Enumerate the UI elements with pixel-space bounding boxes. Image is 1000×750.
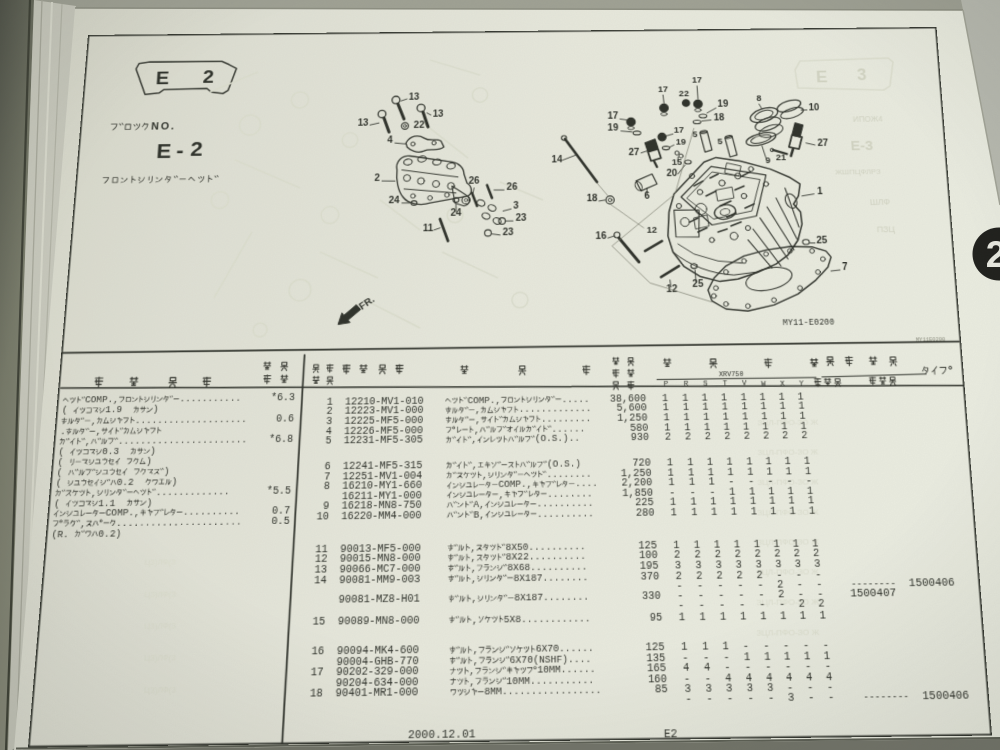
svg-text:....................: .................... [135, 414, 248, 426]
svg-text:15: 15 [672, 157, 683, 167]
svg-text:26: 26 [507, 182, 518, 192]
svg-text:ЗЦЛ-ПФО-ЗО Ж: ЗЦЛ-ПФО-ЗО Ж [757, 537, 820, 548]
svg-text:,: , [471, 434, 477, 445]
svg-text:-: - [706, 692, 713, 706]
svg-text:0.2: 0.2 [116, 477, 134, 489]
svg-text:8MM.................: 8MM................. [484, 685, 601, 699]
svg-text:2: 2 [665, 431, 671, 443]
svg-text:ИПОЖ4: ИПОЖ4 [853, 115, 884, 124]
svg-text:13: 13 [433, 109, 444, 119]
svg-text:8: 8 [324, 480, 331, 493]
svg-text:,: , [471, 593, 477, 605]
svg-text:2: 2 [986, 234, 1000, 275]
svg-text:2: 2 [744, 430, 751, 442]
svg-text:1: 1 [679, 610, 686, 623]
svg-text:3: 3 [788, 691, 795, 705]
svg-text:,: , [91, 487, 98, 498]
svg-text:10: 10 [808, 102, 819, 112]
svg-text:1: 1 [720, 610, 727, 623]
svg-text:5X8............: 5X8............ [504, 613, 591, 626]
svg-text:330: 330 [642, 590, 661, 603]
svg-text:22: 22 [414, 120, 425, 130]
svg-text:,: , [95, 426, 101, 437]
svg-text:8: 8 [756, 93, 762, 103]
svg-text:-: - [808, 691, 815, 705]
svg-text:1: 1 [817, 186, 823, 196]
svg-text:,: , [85, 436, 92, 447]
svg-text:ЦЗ)ЛФ(З: ЦЗ)ЛФ(З [144, 655, 176, 664]
svg-text:-: - [685, 693, 692, 707]
svg-text:W: W [761, 380, 767, 389]
svg-text:1: 1 [760, 609, 767, 622]
svg-text:25: 25 [816, 235, 827, 246]
svg-text:E: E [156, 140, 172, 163]
svg-text:2: 2 [724, 430, 731, 442]
svg-text:): ) [146, 497, 152, 509]
svg-text:1: 1 [751, 505, 758, 518]
svg-text:-: - [727, 692, 734, 706]
svg-text:2: 2 [705, 431, 711, 443]
svg-text:(: ( [54, 498, 61, 510]
svg-text:COMP.,: COMP., [467, 395, 501, 406]
svg-text:90081-MM9-003: 90081-MM9-003 [339, 572, 420, 586]
svg-text:1: 1 [789, 504, 796, 517]
svg-text:(R.: (R. [51, 529, 69, 541]
svg-text:T: T [723, 380, 728, 389]
svg-text:24: 24 [451, 208, 463, 218]
svg-text:26: 26 [469, 176, 480, 186]
svg-text:4: 4 [387, 135, 394, 145]
svg-text:1500406: 1500406 [922, 689, 970, 703]
svg-text:ЦЗ)ЛФ(З: ЦЗ)ЛФ(З [144, 559, 176, 568]
svg-text:2: 2 [190, 138, 204, 161]
svg-text:-: - [768, 692, 775, 706]
svg-text:3: 3 [856, 66, 867, 84]
svg-text:XRV750: XRV750 [719, 370, 744, 378]
svg-text:ЗЦЛ-ПФО-ЗО Ж: ЗЦЛ-ПФО-ЗО Ж [757, 566, 820, 577]
svg-text:11: 11 [423, 223, 434, 233]
svg-text:.: . [60, 426, 67, 437]
svg-text:12: 12 [647, 225, 658, 235]
svg-text:P: P [664, 380, 669, 389]
svg-text:1500407: 1500407 [850, 587, 897, 601]
svg-text:27: 27 [629, 147, 640, 157]
svg-text:18: 18 [587, 193, 598, 203]
svg-text:2: 2 [763, 430, 770, 442]
svg-text:1: 1 [819, 609, 827, 622]
svg-text:(O.S.)..: (O.S.).. [535, 433, 580, 445]
svg-text:17: 17 [674, 125, 685, 135]
svg-text:21: 21 [776, 152, 787, 162]
svg-text:19: 19 [717, 99, 728, 109]
svg-text:8X187........: 8X187........ [514, 592, 589, 605]
svg-text:85: 85 [655, 683, 668, 697]
svg-text:17: 17 [608, 111, 619, 121]
svg-text:95: 95 [650, 611, 663, 624]
svg-text:20: 20 [666, 168, 677, 178]
svg-text:E2: E2 [664, 727, 678, 741]
svg-text:,: , [471, 573, 477, 585]
svg-text:13: 13 [409, 92, 420, 102]
svg-text:.............: ............. [156, 486, 230, 498]
svg-text:ЦЗ)ЛФ(З: ЦЗ)ЛФ(З [144, 591, 176, 600]
svg-text:(: ( [55, 478, 62, 489]
svg-text:16: 16 [595, 231, 606, 242]
svg-text:25: 25 [692, 279, 703, 290]
svg-text:1: 1 [780, 609, 787, 622]
svg-text:16220-MM4-000: 16220-MM4-000 [341, 509, 422, 523]
svg-text:......................: ...................... [116, 516, 242, 529]
svg-text:13: 13 [358, 118, 369, 128]
svg-text:..........: .......... [537, 508, 594, 520]
svg-text:18: 18 [713, 112, 724, 122]
svg-text:90089-MN8-000: 90089-MN8-000 [338, 613, 420, 627]
svg-text:--------: -------- [863, 693, 909, 705]
svg-text:7: 7 [842, 262, 848, 273]
svg-text:.......................: ....................... [118, 434, 248, 447]
svg-text:280: 280 [636, 506, 655, 519]
svg-text:930: 930 [631, 431, 649, 444]
svg-text:,: , [80, 518, 87, 530]
svg-text:-: - [176, 139, 185, 162]
svg-text:0.3: 0.3 [102, 446, 120, 457]
svg-text:1.9: 1.9 [105, 405, 123, 416]
svg-text:0.2): 0.2) [98, 528, 122, 540]
svg-text:ЗЦЛ-ПФО-ЗО Ж: ЗЦЛ-ПФО-ЗО Ж [756, 626, 820, 638]
svg-text:...........: ........... [179, 393, 241, 405]
svg-text:,: , [472, 460, 478, 471]
svg-text:18: 18 [310, 687, 323, 701]
svg-text:*6.8: *6.8 [269, 433, 294, 446]
svg-text:5: 5 [325, 435, 332, 447]
svg-text:E: E [816, 68, 828, 86]
svg-text:1: 1 [699, 610, 706, 623]
svg-text:Y: Y [799, 380, 804, 389]
svg-text:90081-MZ8-H01: 90081-MZ8-H01 [338, 592, 420, 606]
svg-text:1: 1 [770, 505, 777, 518]
svg-text:2: 2 [782, 430, 789, 442]
svg-text:0.6: 0.6 [276, 412, 295, 424]
svg-text:*5.5: *5.5 [266, 484, 291, 497]
svg-text:16: 16 [311, 645, 324, 658]
svg-text:ЦЗ)ЛФ(З: ЦЗ)ЛФ(З [144, 623, 176, 632]
svg-text:23: 23 [503, 227, 514, 237]
svg-text:17: 17 [658, 84, 668, 94]
svg-text:,: , [469, 676, 475, 688]
svg-text:B,: B, [473, 509, 484, 521]
svg-text:15: 15 [312, 615, 325, 628]
svg-text:1: 1 [711, 505, 718, 518]
svg-text:23: 23 [516, 213, 527, 223]
svg-text:,: , [472, 614, 478, 626]
svg-text:370: 370 [640, 570, 659, 583]
svg-text:27: 27 [817, 138, 828, 148]
svg-text:5: 5 [717, 136, 723, 146]
svg-text:ЖШПЦФЛРЗ: ЖШПЦФЛРЗ [835, 167, 882, 177]
svg-text:): ) [163, 466, 169, 477]
svg-text:2: 2 [801, 430, 808, 442]
svg-text:ШЛФ: ШЛФ [869, 198, 890, 207]
svg-text:,: , [499, 489, 505, 500]
svg-text:1: 1 [809, 504, 816, 517]
svg-text:2000.12.01: 2000.12.01 [408, 727, 476, 741]
svg-text:NO.: NO. [151, 122, 176, 133]
svg-text:1: 1 [671, 506, 678, 519]
svg-text:2: 2 [202, 67, 214, 88]
svg-text:MY11-E0200: MY11-E0200 [783, 319, 836, 328]
svg-text:14: 14 [552, 154, 564, 164]
svg-text:17: 17 [692, 75, 703, 85]
svg-text:0.5: 0.5 [271, 514, 290, 527]
svg-text:1: 1 [691, 505, 698, 518]
svg-text:V: V [742, 380, 748, 389]
svg-text:1: 1 [731, 505, 738, 518]
svg-text:ЦЗ)ЛФ(З: ЦЗ)ЛФ(З [144, 687, 177, 696]
svg-text:*6.3: *6.3 [271, 391, 296, 403]
svg-text:): ) [152, 404, 158, 415]
svg-text:14: 14 [314, 574, 328, 587]
svg-text:ПЗЦ: ПЗЦ [876, 225, 895, 235]
svg-text:-: - [747, 692, 754, 706]
svg-text:-: - [828, 691, 835, 705]
svg-text:17: 17 [311, 666, 324, 680]
svg-text:2: 2 [685, 431, 691, 443]
svg-text:2: 2 [374, 173, 380, 183]
svg-text:90401-MR1-000: 90401-MR1-000 [335, 686, 418, 700]
svg-text:1500406: 1500406 [908, 576, 955, 589]
svg-text:3: 3 [513, 201, 518, 211]
svg-text:X: X [780, 380, 785, 389]
svg-text:1: 1 [740, 610, 747, 623]
svg-text:ЗЦЛ-ПФО-ЗО Ж: ЗЦЛ-ПФО-ЗО Ж [756, 596, 819, 607]
svg-text:(: ( [61, 405, 68, 416]
svg-text:E-3: E-3 [850, 138, 874, 153]
svg-text:19: 19 [608, 123, 619, 133]
svg-text:R: R [684, 380, 689, 389]
svg-text:,: , [482, 470, 488, 481]
svg-text:S: S [703, 380, 708, 389]
svg-text:19: 19 [676, 137, 687, 147]
svg-text:8X187........: 8X187........ [514, 572, 589, 585]
svg-text:1: 1 [799, 609, 806, 622]
svg-text:10: 10 [316, 510, 329, 523]
svg-text:E: E [155, 68, 170, 89]
svg-text:24: 24 [389, 195, 401, 205]
svg-text:): ) [146, 456, 152, 467]
svg-text:12231-MF5-305: 12231-MF5-305 [344, 434, 424, 447]
svg-text:22: 22 [679, 88, 690, 98]
